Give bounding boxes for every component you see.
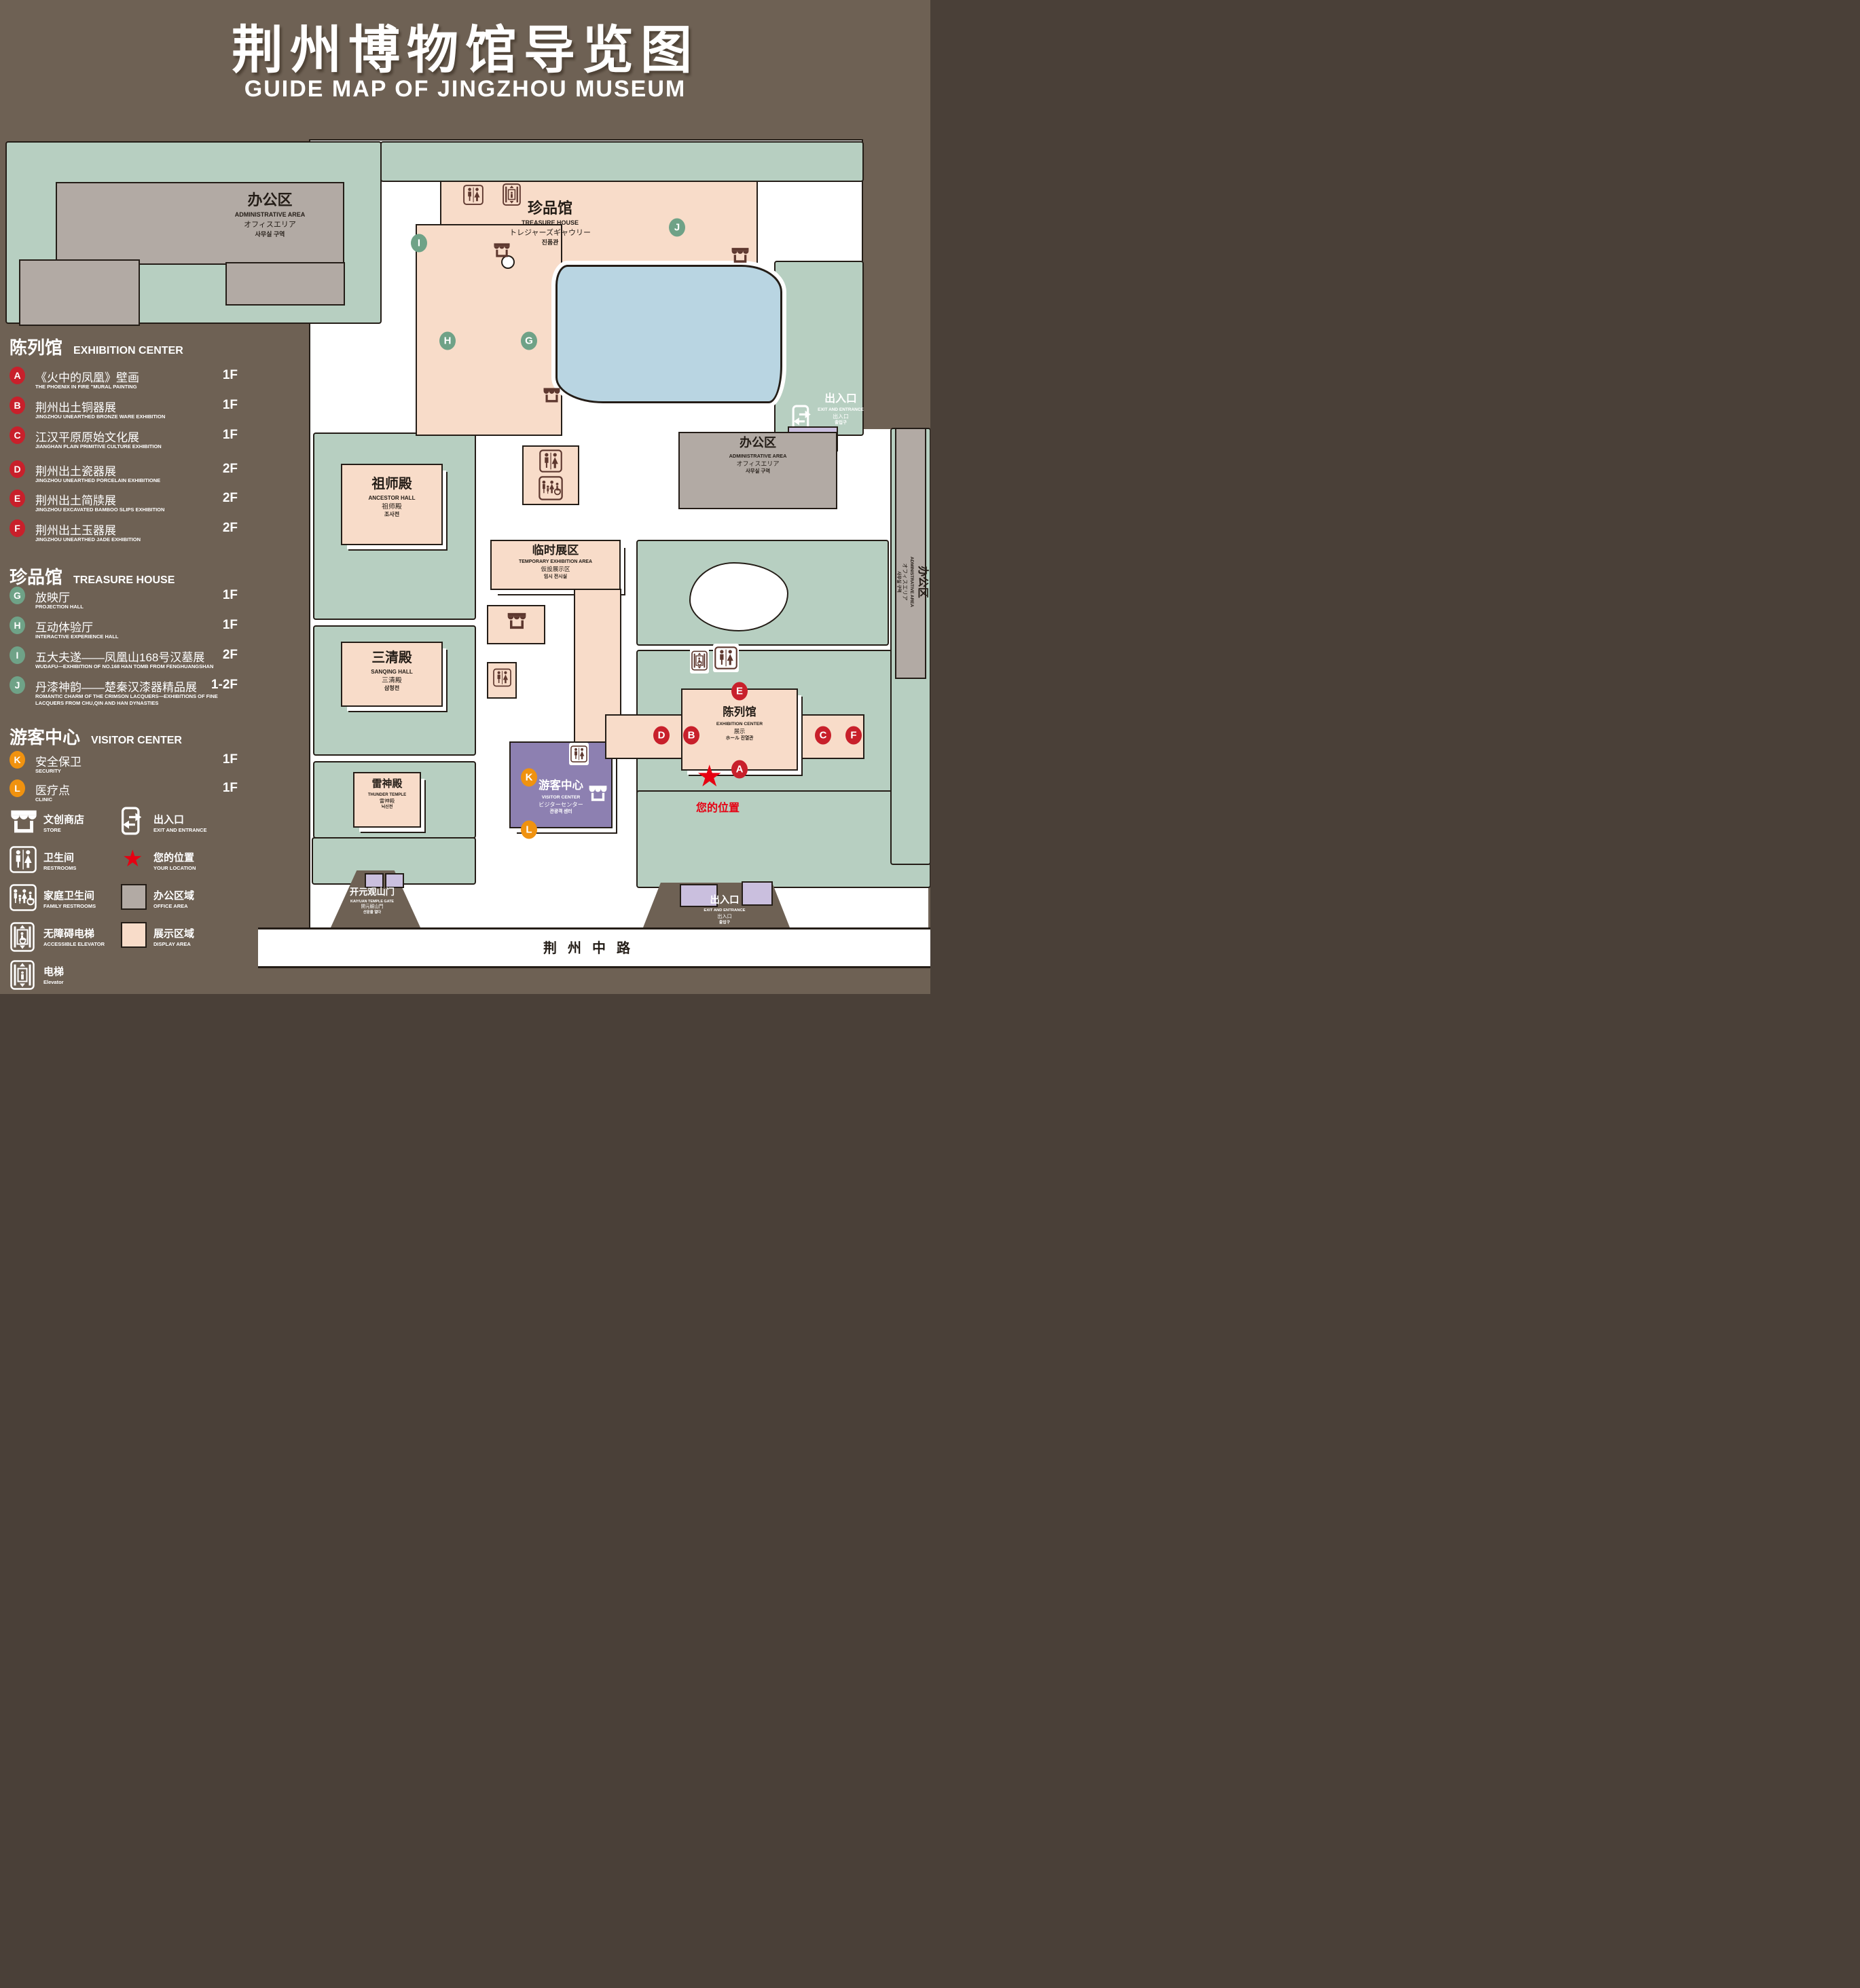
symbol-display-sublabel: DISPLAY AREA (153, 941, 191, 947)
page-title: 荆州博物馆导览图 (0, 8, 930, 83)
accessible-elevator-icon (10, 922, 35, 952)
family-restrooms-icon (10, 884, 37, 911)
marker-b: B (683, 726, 699, 745)
marker-j: J (669, 219, 685, 237)
admin-east-label: 办公区 ADMINISTRATIVE AREA オフィスエリア 사무실 구역 (690, 436, 826, 475)
thunder-temple-label: 雷神殿 THUNDER TEMPLE 雷神殿 뇌신전 (356, 778, 418, 810)
store-icon (588, 785, 608, 802)
elevator-icon (10, 960, 35, 990)
marker-g: G (521, 332, 537, 350)
marker-d: D (653, 726, 670, 745)
building-admin-strip: 办公区 ADMINISTRATIVE AREA オフィスエリア 사무실 구역 (895, 428, 926, 679)
symbol-accessible-label: 无障碍电梯 (43, 926, 94, 940)
marker-h: H (439, 332, 456, 350)
building-treasure-house-wing (416, 224, 562, 436)
gatehouse-west (365, 873, 384, 888)
exit-south-label: 出入口 EXIT AND ENTRANCE 出入口 출입구 (684, 895, 765, 925)
admin-strip-label: 办公区 ADMINISTRATIVE AREA オフィスエリア 사무실 구역 (895, 480, 929, 684)
lake (555, 265, 782, 403)
exit-north-label: 出入口 EXIT AND ENTRANCE 出入口 출입구 (803, 392, 879, 426)
legend-section-visitor-center: 游客中心VISITOR CENTER (10, 724, 182, 749)
symbol-location-label: 您的位置 (153, 850, 194, 864)
symbol-family-sublabel: FAMILY RESTROOMS (43, 903, 96, 909)
symbol-restrooms-label: 卫生间 (43, 850, 74, 864)
exit-icon (121, 807, 144, 835)
lawn-top-strip (380, 141, 864, 182)
symbol-exit-sublabel: EXIT AND ENTRANCE (153, 827, 206, 833)
restrooms-icon (539, 449, 562, 473)
exhibition-center-label: 陈列馆 EXHIBITION CENTER 展示 ホール 진열관 (688, 706, 791, 741)
gatehouse-east (385, 873, 404, 888)
symbol-elevator-label: 电梯 (43, 964, 64, 978)
symbol-elevator-sublabel: Elevator (43, 979, 64, 985)
building-exhibition-center-west-wing (605, 714, 684, 759)
sanqing-hall-label: 三清殿 SANQING HALL 三清殿 삼청전 (344, 650, 439, 693)
marker-e: E (731, 682, 748, 701)
restrooms-icon (10, 846, 37, 873)
display-area-swatch (121, 922, 147, 948)
symbol-store-label: 文创商店 (43, 812, 84, 826)
restrooms-icon (463, 185, 484, 205)
symbol-display-label: 展示区域 (153, 926, 194, 940)
family-restrooms-icon (539, 476, 563, 500)
symbol-location-sublabel: YOUR LOCATION (153, 865, 196, 871)
store-icon (507, 612, 527, 630)
guide-map-poster: 荆州博物馆导览图 GUIDE MAP OF JINGZHOU MUSEUM 荆州… (0, 0, 930, 994)
admin-northwest-label: 办公区 ADMINISTRATIVE AREA オフィスエリア 사무실 구역 (194, 191, 346, 238)
store-icon (543, 387, 561, 403)
your-location-star-icon: ★ (122, 847, 143, 870)
symbol-office-sublabel: OFFICE AREA (153, 903, 188, 909)
symbol-family-label: 家庭卫生间 (43, 888, 94, 902)
symbol-exit-label: 出入口 (153, 812, 184, 826)
temporary-exhibition-label: 临时展区 TEMPORARY EXHIBITION AREA 仮設展示区 임시 … (494, 543, 617, 580)
marker-f: F (845, 726, 862, 745)
store-icon (493, 242, 511, 258)
building-admin-northwest-wing (19, 259, 140, 326)
gate-label: 开元观山门 KAIYUAN TEMPLE GATE 開元観山門 산문을 열다 (332, 887, 412, 915)
symbol-office-label: 办公区域 (153, 888, 194, 902)
restrooms-icon (569, 743, 589, 765)
symbol-restrooms-sublabel: RESTROOMS (43, 865, 76, 871)
symbol-accessible-sublabel: ACCESSIBLE ELEVATOR (43, 941, 105, 947)
your-location-label: 您的位置 (679, 798, 756, 815)
page-subtitle: GUIDE MAP OF JINGZHOU MUSEUM (0, 76, 930, 103)
accessible-elevator-icon (690, 648, 709, 674)
marker-c: C (815, 726, 831, 745)
office-area-swatch (121, 884, 147, 910)
restrooms-icon (493, 668, 511, 687)
treasure-house-label: 珍品馆 TREASURE HOUSE トレジャーズギャウリー 진품관 (475, 200, 625, 246)
store-icon (731, 247, 750, 263)
building-admin-northwest-annex (225, 262, 345, 306)
legend-section-treasure-house: 珍品馆TREASURE HOUSE (10, 564, 175, 589)
road-name: 荆州中路 (484, 937, 701, 957)
elevator-icon (503, 183, 521, 206)
marker-i: I (411, 234, 427, 253)
restrooms-icon (713, 644, 739, 672)
ancestor-hall-label: 祖师殿 ANCESTOR HALL 祖师殿 조사전 (344, 477, 439, 519)
store-icon (10, 809, 38, 834)
marker-l: L (521, 821, 537, 839)
marker-k: K (521, 769, 537, 787)
symbol-store-sublabel: STORE (43, 827, 61, 833)
marker-a: A (731, 760, 748, 779)
legend-section-exhibition-center: 陈列馆EXHIBITION CENTER (10, 334, 183, 359)
your-location-star-icon: ★ (696, 762, 723, 792)
